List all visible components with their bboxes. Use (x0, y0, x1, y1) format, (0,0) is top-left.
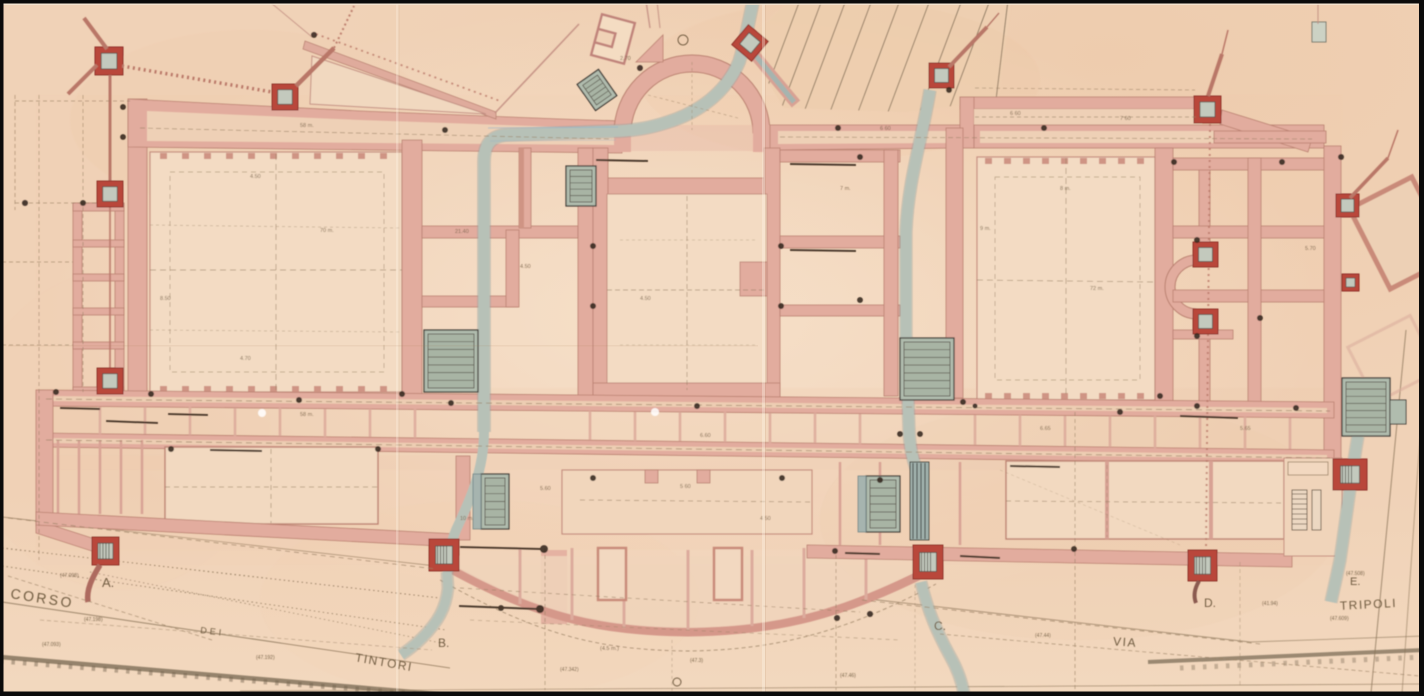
svg-text:(47.098): (47.098) (60, 573, 79, 579)
svg-text:4.50: 4.50 (640, 296, 651, 302)
svg-text:E.: E. (1350, 576, 1360, 588)
svg-text:(41.94): (41.94) (1262, 601, 1278, 607)
svg-text:(47.192): (47.192) (256, 655, 275, 661)
svg-text:TRIPOLI: TRIPOLI (1340, 596, 1398, 613)
svg-text:9 m.: 9 m. (980, 226, 991, 232)
svg-text:(47.093): (47.093) (42, 642, 61, 648)
svg-text:(4.5 m.): (4.5 m.) (600, 646, 619, 652)
svg-text:21.40: 21.40 (455, 229, 469, 235)
svg-text:D.: D. (1204, 596, 1216, 610)
svg-text:72 m.: 72 m. (1090, 286, 1104, 292)
svg-text:7 m.: 7 m. (840, 186, 851, 192)
svg-text:(47.198): (47.198) (84, 617, 103, 623)
svg-text:5 60: 5 60 (680, 484, 691, 490)
svg-text:(47.609): (47.609) (1330, 616, 1349, 622)
svg-text:2.70: 2.70 (620, 56, 631, 62)
svg-text:5.70: 5.70 (1305, 246, 1316, 252)
svg-text:6 60: 6 60 (1010, 111, 1021, 117)
svg-text:(47.46): (47.46) (840, 673, 856, 679)
svg-text:4.70: 4.70 (240, 356, 251, 362)
svg-text:C.: C. (934, 619, 946, 633)
svg-text:(47.342): (47.342) (560, 667, 579, 673)
svg-text:6.65: 6.65 (1040, 426, 1051, 432)
svg-text:B.: B. (438, 636, 449, 650)
svg-text:70 m.: 70 m. (320, 228, 334, 234)
svg-text:8.50: 8.50 (160, 296, 171, 302)
svg-text:6.60: 6.60 (700, 433, 711, 439)
svg-text:10 m.: 10 m. (460, 516, 474, 522)
svg-text:4.50: 4.50 (250, 174, 261, 180)
svg-text:58 m.: 58 m. (300, 123, 314, 129)
svg-text:VIA: VIA (1113, 634, 1138, 650)
svg-text:(47.44): (47.44) (1035, 633, 1051, 639)
svg-text:58 m.: 58 m. (300, 412, 314, 418)
svg-text:6 60: 6 60 (880, 126, 891, 132)
svg-text:5.60: 5.60 (540, 486, 551, 492)
svg-text:4.50: 4.50 (520, 264, 531, 270)
svg-text:7 60: 7 60 (1120, 116, 1131, 122)
svg-text:(47.3): (47.3) (690, 658, 703, 664)
svg-text:8 m.: 8 m. (1060, 186, 1071, 192)
svg-text:5.65: 5.65 (1240, 426, 1251, 432)
svg-text:A.: A. (102, 575, 114, 590)
svg-text:(47.508): (47.508) (1346, 571, 1365, 577)
